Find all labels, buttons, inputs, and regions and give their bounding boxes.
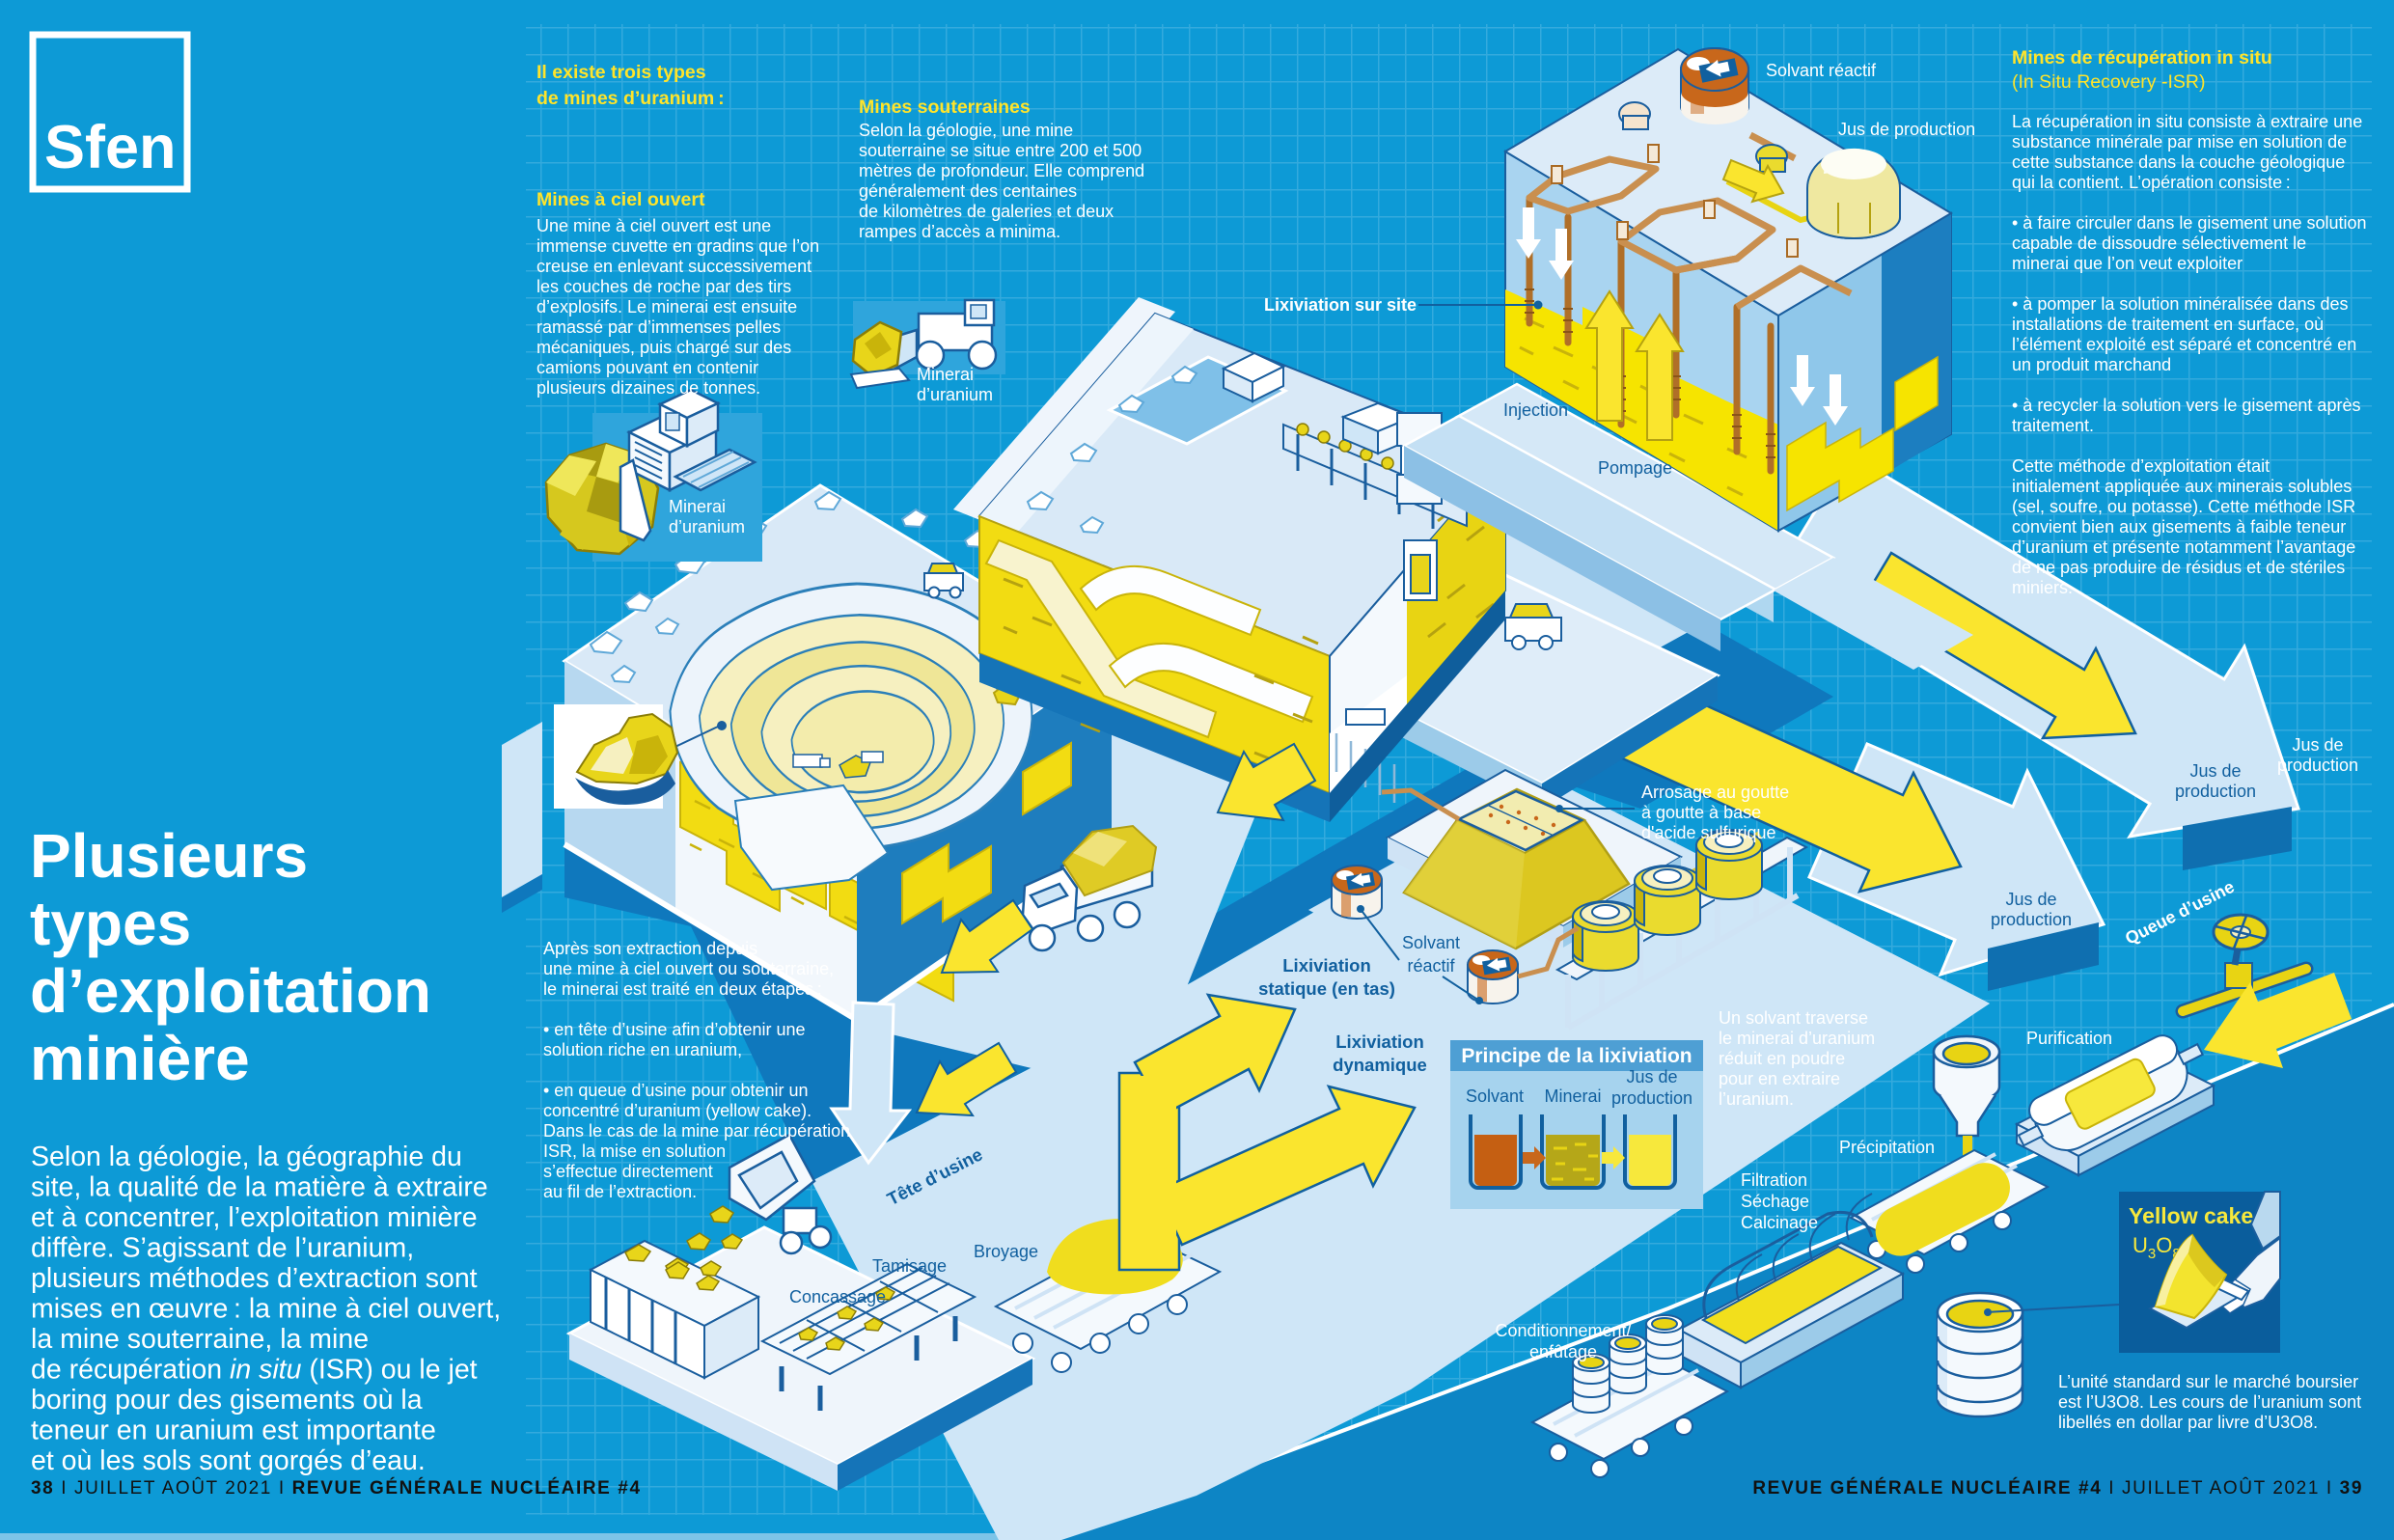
svg-text:Plusieurs: Plusieurs <box>30 821 308 891</box>
svg-text:types: types <box>30 889 191 958</box>
svg-text:38 I JUILLET AOÛT 2021 I REVUE: 38 I JUILLET AOÛT 2021 I REVUE GÉNÉRALE … <box>31 1477 642 1499</box>
svg-text:L’unité standard sur le marché: L’unité standard sur le marché boursiere… <box>2058 1372 2361 1432</box>
svg-text:Minerai: Minerai <box>1544 1086 1601 1106</box>
svg-text:REVUE GÉNÉRALE NUCLÉAIRE #4 I: REVUE GÉNÉRALE NUCLÉAIRE #4 I JUILLET AO… <box>1752 1477 2363 1499</box>
svg-text:Précipitation: Précipitation <box>1839 1138 1935 1157</box>
svg-text:Tamisage: Tamisage <box>872 1256 947 1276</box>
svg-text:Jus de: Jus de <box>1626 1067 1677 1086</box>
svg-text:FiltrationSéchageCalcinage: FiltrationSéchageCalcinage <box>1741 1170 1818 1232</box>
svg-text:Mines à ciel ouvert: Mines à ciel ouvert <box>537 189 705 210</box>
svg-text:Jus de production: Jus de production <box>1838 120 1975 139</box>
svg-text:Injection: Injection <box>1503 400 1568 420</box>
svg-text:Broyage: Broyage <box>974 1242 1038 1261</box>
svg-text:Mines de récupération in situ: Mines de récupération in situ <box>2012 47 2272 69</box>
svg-text:Concassage: Concassage <box>789 1287 886 1306</box>
svg-text:Yellow cake: Yellow cake <box>2129 1203 2253 1228</box>
svg-text:Purification: Purification <box>2026 1029 2112 1048</box>
svg-text:Sfen: Sfen <box>44 114 177 181</box>
svg-text:Selon la géologie, la géograph: Selon la géologie, la géographie du site… <box>31 1141 509 1476</box>
svg-text:Il existe trois types: Il existe trois types <box>537 62 706 83</box>
svg-text:Principe de la lixiviation: Principe de la lixiviation <box>1461 1045 1692 1067</box>
svg-text:Solvant: Solvant <box>1466 1086 1524 1106</box>
svg-text:(In Situ Recovery -ISR): (In Situ Recovery -ISR) <box>2012 71 2205 93</box>
svg-text:Lixiviation sur site: Lixiviation sur site <box>1264 295 1417 315</box>
svg-text:Solvant réactif: Solvant réactif <box>1766 61 1877 80</box>
svg-text:minière: minière <box>30 1024 250 1093</box>
svg-text:d’exploitation: d’exploitation <box>30 956 431 1026</box>
svg-text:Mines souterraines: Mines souterraines <box>859 96 1031 118</box>
svg-text:Pompage: Pompage <box>1598 458 1672 478</box>
svg-text:production: production <box>1611 1088 1692 1108</box>
svg-text:de mines d’uranium :: de mines d’uranium : <box>537 88 725 109</box>
